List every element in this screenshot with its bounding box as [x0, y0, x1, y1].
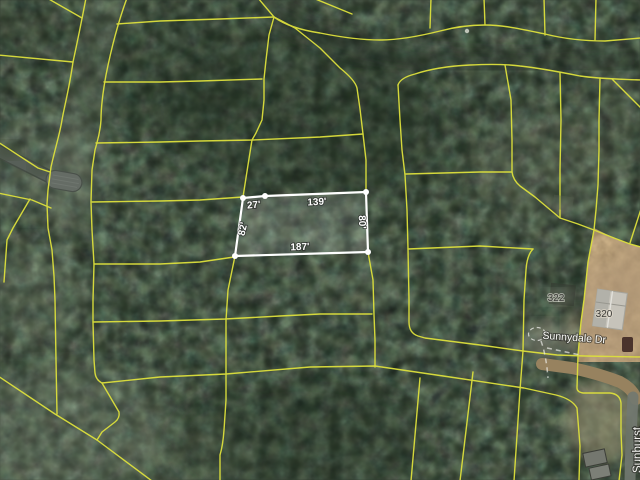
- svg-text:320: 320: [596, 309, 613, 320]
- svg-text:80': 80': [356, 215, 367, 229]
- svg-text:139': 139': [307, 197, 327, 209]
- svg-text:Sunburst: Sunburst: [632, 426, 640, 473]
- svg-text:187': 187': [290, 242, 309, 254]
- svg-text:27': 27': [247, 199, 261, 211]
- svg-text:322: 322: [548, 293, 565, 304]
